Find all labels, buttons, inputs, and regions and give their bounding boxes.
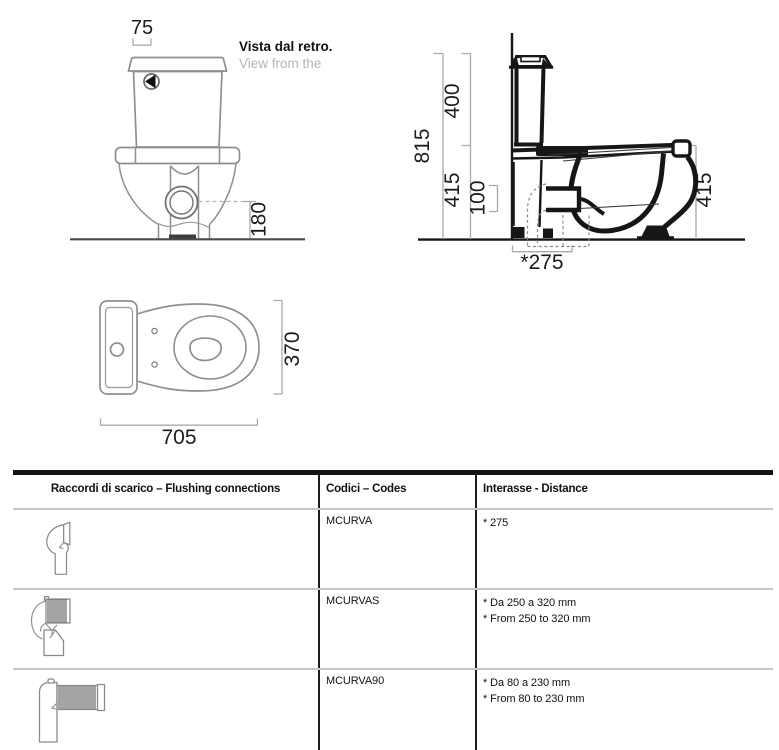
code-cell: MCURVAS [318,590,475,668]
flexible-elbow-connector-icon [30,596,74,658]
side-view-drawing: 815 400 415 100 415 *275 [411,33,745,274]
dim-100-label: 100 [467,180,490,215]
header-flushing-connections: Raccordi di scarico – Flushing connectio… [13,475,318,508]
table-row: MCURVA90 * Da 80 a 230 mm * From 80 to 2… [13,668,773,750]
flushing-connections-table: Raccordi di scarico – Flushing connectio… [13,470,773,750]
dim-180-label: 180 [248,202,271,237]
seat-hole [152,328,157,333]
seat-hole [152,362,157,367]
table-header-row: Raccordi di scarico – Flushing connectio… [13,475,773,508]
flexible-90-connector-icon [36,678,110,744]
distance-cell: * Da 250 a 320 mm * From 250 to 320 mm [475,590,773,668]
dim-75-bracket [133,39,151,46]
header-codes: Codici – Codes [318,475,475,508]
rear-view-caption-it: Vista dal retro. [239,39,333,54]
dim-75-label: 75 [131,17,153,39]
dim-415-left-label: 415 [441,172,464,207]
dim-815-label: 815 [411,128,434,163]
technical-drawing: Vista dal retro. View from the 75 [0,0,779,470]
header-distance: Interasse - Distance [475,475,773,508]
seat-tip [673,141,690,156]
distance-cell: * 275 [475,510,773,588]
top-view-drawing: 370 705 [100,301,304,450]
product-spec-sheet: Vista dal retro. View from the 75 [0,0,779,750]
table-row: MCURVA * 275 [13,508,773,588]
elbow-connector-icon [44,519,74,579]
cistern-hole [111,343,124,356]
code-cell: MCURVA [318,510,475,588]
code-cell: MCURVA90 [318,670,475,750]
dim-370-label: 370 [281,331,304,366]
dim-275-label: *275 [520,251,563,274]
dim-400-label: 400 [441,83,464,118]
rear-view-drawing: Vista dal retro. View from the 75 [70,17,333,239]
table-row: MCURVAS * Da 250 a 320 mm * From 250 to … [13,588,773,668]
dim-705-label: 705 [161,426,196,449]
distance-cell: * Da 80 a 230 mm * From 80 to 230 mm [475,670,773,750]
rear-view-caption-en: View from the [239,56,321,71]
